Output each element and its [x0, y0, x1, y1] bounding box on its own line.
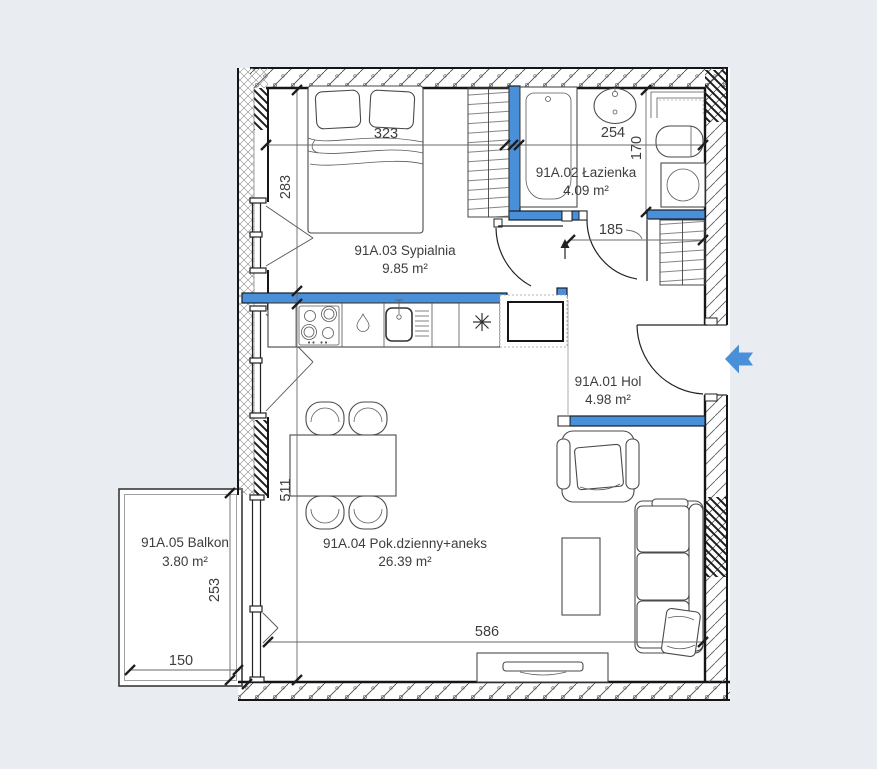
dim-bedroom-width: 323 — [374, 126, 398, 142]
room-name: 91A.03 Sypialnia — [354, 243, 456, 258]
room-area: 9.85 m² — [382, 261, 428, 276]
wardrobe-hall — [660, 220, 705, 285]
wardrobe-bedroom — [468, 88, 509, 217]
room-name: 91A.04 Pok.dzienny+aneks — [323, 536, 487, 551]
coffee-table — [562, 538, 600, 615]
wall-bathtub-south — [509, 211, 562, 220]
structural-pier — [705, 497, 727, 577]
chair — [306, 496, 344, 529]
kitchen-cabinet — [500, 295, 567, 347]
dining-table — [290, 435, 396, 496]
wall-kitchen — [242, 293, 507, 303]
dim-balcony-width: 150 — [169, 653, 193, 669]
room-area: 3.80 m² — [162, 554, 208, 569]
room-name: 91A.05 Balkon — [141, 535, 229, 550]
floor-plan: 323 283 254 170 185 511 586 253 150 91A.… — [0, 0, 877, 769]
chair — [349, 496, 387, 529]
floor-plan-canvas: 323 283 254 170 185 511 586 253 150 91A.… — [0, 0, 877, 769]
structural-pier — [254, 420, 268, 498]
wall-top — [250, 68, 728, 88]
pillow — [315, 90, 361, 129]
dining-set — [290, 402, 396, 529]
room-area: 4.09 m² — [563, 183, 609, 198]
dim-living-width: 586 — [475, 624, 499, 640]
sofa-pillow — [661, 608, 701, 657]
chair — [349, 402, 387, 435]
dim-balcony-depth: 253 — [207, 578, 223, 602]
bed — [308, 86, 423, 233]
wall-bottom — [238, 682, 730, 700]
toilet — [656, 126, 703, 157]
wall-bedroom-bathroom — [509, 86, 520, 216]
room-area: 4.98 m² — [585, 392, 631, 407]
room-name: 91A.01 Hol — [575, 374, 642, 389]
chair — [306, 402, 344, 435]
armchair — [557, 431, 639, 502]
dim-bedroom-depth: 283 — [278, 175, 294, 199]
dim-hall-width: 185 — [599, 222, 623, 238]
fridge-star-icon — [473, 313, 491, 331]
dim-bathroom-depth: 170 — [629, 136, 645, 160]
tv — [503, 662, 583, 671]
dim-living-depth: 511 — [278, 478, 294, 501]
washing-machine — [661, 163, 705, 207]
room-area: 26.39 m² — [378, 554, 432, 569]
sofa — [635, 499, 703, 657]
kitchen-counter — [268, 295, 567, 347]
tv-cabinet — [477, 653, 608, 682]
pillow — [369, 90, 415, 129]
wall-bathroom-hall — [647, 210, 705, 219]
room-name: 91A.02 Łazienka — [536, 165, 637, 180]
dim-bathroom-width: 254 — [601, 125, 625, 141]
wall-hall-living — [570, 416, 705, 426]
